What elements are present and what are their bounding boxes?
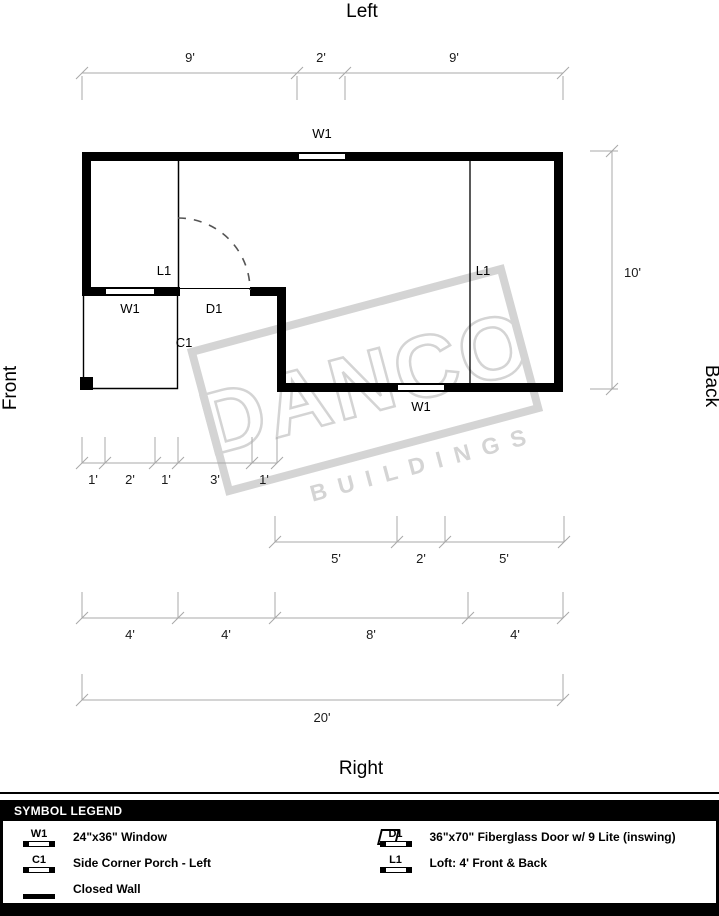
legend-item-window: W1 24"x36" Window: [3, 826, 360, 848]
symbol-code: W1: [31, 828, 48, 840]
dim-label: 2': [316, 50, 326, 65]
dim-label: 2': [416, 551, 426, 566]
door-symbol-inner: [386, 842, 406, 846]
dim-label: 2': [125, 472, 135, 487]
dim-label: 1': [88, 472, 98, 487]
label-loft-left: L1: [157, 263, 171, 278]
symbol-legend: SYMBOL LEGEND W1 24"x36" Window C1 Side …: [0, 792, 719, 916]
floorplan-page: { "orientation": { "top": "Left", "botto…: [0, 0, 719, 916]
dim-label: 9': [185, 50, 195, 65]
symbol-code: L1: [389, 854, 402, 866]
dim-row-back: [269, 516, 570, 548]
dim-row-back-labels: 5' 2' 5': [331, 551, 509, 566]
dim-row-total: [76, 674, 569, 706]
dim-label: 3': [210, 472, 220, 487]
closed-wall-symbol: [15, 879, 63, 899]
label-porch: C1: [176, 335, 193, 350]
wall-porch-side: [277, 287, 286, 392]
orientation-bottom-label: Right: [339, 758, 384, 779]
label-loft-right: L1: [476, 263, 490, 278]
watermark: DANCO BUILDINGS: [183, 267, 556, 529]
label-window-front: W1: [120, 301, 140, 316]
loft-symbol-inner: [386, 868, 406, 872]
dim-label: 9': [449, 50, 459, 65]
dim-label: 5': [499, 551, 509, 566]
legend-item-door: D1 36"x70" Fiberglass Door w/ 9 Lite (in…: [360, 826, 717, 848]
label-window-top: W1: [312, 126, 332, 141]
dim-label: 4': [221, 627, 231, 642]
wall-right: [554, 152, 563, 392]
legend-item-description: Closed Wall: [73, 882, 141, 896]
legend-spacer-row: [360, 878, 717, 900]
porch-symbol-inner: [29, 868, 49, 872]
legend-item-description: 24"x36" Window: [73, 830, 167, 844]
dim-row-loft: [76, 592, 569, 624]
door-symbol-bar: [380, 841, 412, 847]
orientation-right-label: Back: [701, 365, 719, 408]
door-symbol: D1: [372, 828, 420, 847]
label-window-back: W1: [411, 399, 431, 414]
legend-body: W1 24"x36" Window C1 Side Corner Porch -…: [0, 821, 719, 903]
window-back: [398, 385, 445, 391]
window-symbol-glass: [29, 842, 49, 846]
legend-item-description: Side Corner Porch - Left: [73, 856, 211, 870]
legend-item-closed-wall: Closed Wall: [3, 878, 360, 900]
orientation-top-label: Left: [346, 1, 378, 22]
porch-symbol: C1: [15, 854, 63, 873]
dim-label: 10': [624, 265, 641, 280]
dim-label: 1': [161, 472, 171, 487]
dim-label: 20': [314, 710, 331, 725]
orientation-left-label: Front: [0, 365, 21, 410]
dim-label: 4': [510, 627, 520, 642]
wall-left: [82, 152, 91, 296]
legend-header: SYMBOL LEGEND: [0, 800, 719, 821]
floorplan-drawing: DANCO BUILDINGS Left Right Front Back 9'…: [0, 0, 719, 790]
loft-symbol: L1: [372, 854, 420, 873]
legend-item-porch: C1 Side Corner Porch - Left: [3, 852, 360, 874]
legend-header-title: SYMBOL LEGEND: [14, 804, 122, 818]
dim-side: [590, 145, 618, 395]
window-symbol-bar: [23, 841, 55, 847]
window-top: [299, 154, 346, 160]
door-swing-arc: [178, 218, 250, 290]
dim-row-top: [76, 67, 569, 100]
porch-post: [80, 377, 93, 390]
symbol-code: C1: [32, 854, 46, 866]
closed-wall-symbol-bar: [23, 894, 55, 899]
dim-row-porch: [76, 437, 283, 469]
label-door: D1: [206, 301, 223, 316]
dim-label: 1': [259, 472, 269, 487]
dim-label: 5': [331, 551, 341, 566]
legend-column-right: D1 36"x70" Fiberglass Door w/ 9 Lite (in…: [360, 826, 717, 900]
legend-item-loft: L1 Loft: 4' Front & Back: [360, 852, 717, 874]
window-front: [106, 289, 155, 295]
dim-row-top-labels: 9' 2' 9': [185, 50, 459, 65]
symbol-code: D1: [388, 828, 402, 840]
legend-column-left: W1 24"x36" Window C1 Side Corner Porch -…: [3, 826, 360, 900]
dim-label: 8': [366, 627, 376, 642]
dim-row-loft-labels: 4' 4' 8' 4': [125, 627, 520, 642]
dim-label: 4': [125, 627, 135, 642]
loft-symbol-bar: [380, 867, 412, 873]
window-symbol: W1: [15, 828, 63, 847]
legend-bottom-border: [0, 903, 719, 916]
legend-item-description: 36"x70" Fiberglass Door w/ 9 Lite (inswi…: [430, 830, 676, 844]
porch-symbol-bar: [23, 867, 55, 873]
legend-item-description: Loft: 4' Front & Back: [430, 856, 548, 870]
door-opening: [180, 287, 250, 296]
